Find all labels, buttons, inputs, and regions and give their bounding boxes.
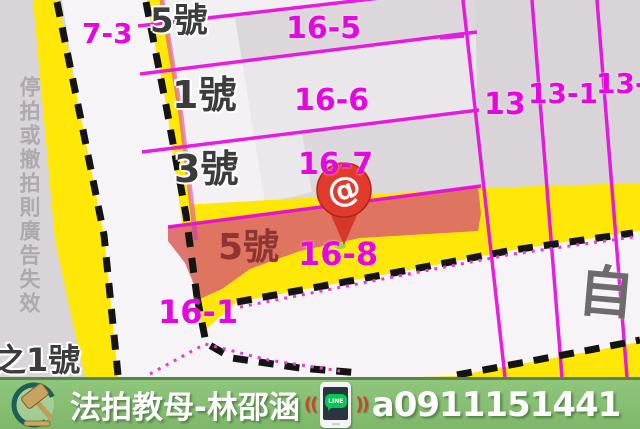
house-label-1: 1號 bbox=[172, 76, 236, 114]
road-name-label: 自 bbox=[576, 264, 637, 325]
phone-number: a0911151441 bbox=[372, 385, 621, 425]
sound-wave-left: (( bbox=[304, 394, 316, 415]
brand-name: 法拍教母-林邵涵 bbox=[70, 382, 300, 427]
house-label-of-1: 之1號 bbox=[0, 344, 80, 376]
parcel-label-16-6: 16-6 bbox=[294, 86, 369, 116]
parcel-label-16-8: 16-8 bbox=[298, 238, 378, 270]
parcel-label-16-7: 16-7 bbox=[298, 150, 373, 180]
parcel-label-7-3: 7-3 bbox=[82, 20, 133, 48]
screenshot-stage: @ 停拍或撤拍則廣告失效 7-3 5號 16-5 1號 16-6 3號 16-7… bbox=[0, 0, 640, 429]
parcel-label-13: 13 bbox=[484, 90, 526, 120]
house-label-3: 3號 bbox=[174, 150, 238, 188]
watermark-text: 停拍或撤拍則廣告失效 bbox=[14, 76, 44, 316]
gavel-logo bbox=[8, 381, 66, 429]
line-phone-icon: LINE bbox=[320, 382, 351, 428]
parcel-label-16-1: 16-1 bbox=[158, 296, 238, 328]
house-label-5-top: 5號 bbox=[150, 4, 208, 38]
phone-screen: LINE bbox=[323, 387, 348, 420]
house-label-5-highlight: 5號 bbox=[218, 230, 279, 266]
line-label: LINE bbox=[328, 398, 343, 405]
line-app-icon: LINE bbox=[325, 394, 347, 408]
phone-home-button bbox=[332, 423, 340, 425]
cadastral-map[interactable]: @ 停拍或撤拍則廣告失效 7-3 5號 16-5 1號 16-6 3號 16-7… bbox=[0, 0, 640, 377]
parcel-label-13-1-clipped: 13-1 bbox=[596, 70, 640, 98]
parcel-label-16-5: 16-5 bbox=[286, 14, 361, 44]
ad-banner: 法拍教母-林邵涵 (( LINE )) a0911151441 bbox=[0, 377, 640, 429]
parcel-label-13-1: 13-1 bbox=[528, 80, 598, 108]
sound-wave-right: )) bbox=[355, 394, 367, 415]
map-shapes: @ bbox=[0, 0, 640, 377]
